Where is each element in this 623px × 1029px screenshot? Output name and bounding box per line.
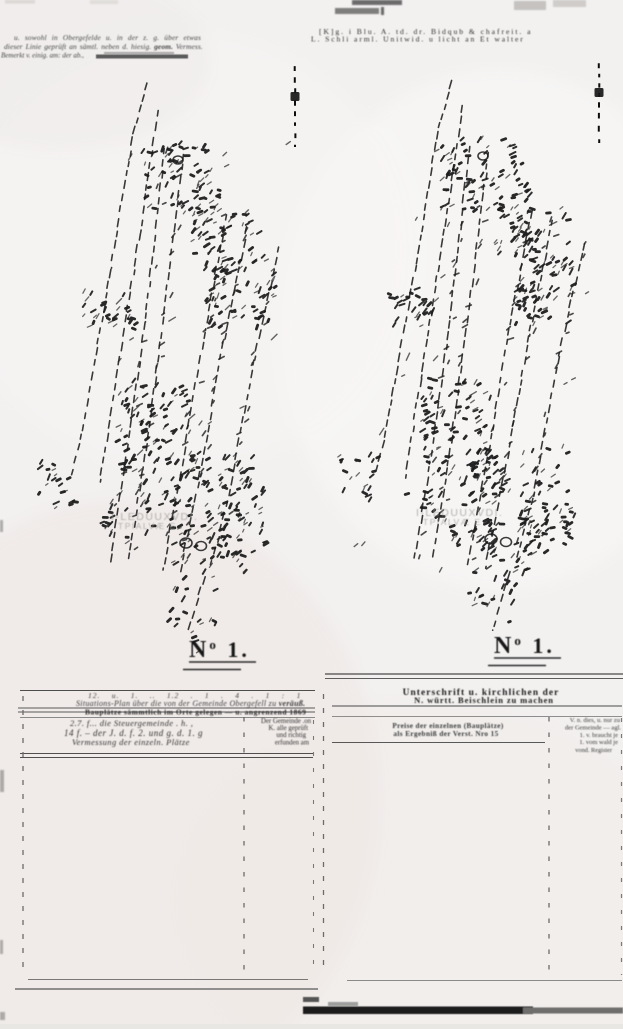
svg-text:der Gemeinde — agl.: der Gemeinde — agl. [565, 725, 621, 732]
svg-text:und richtig: und richtig [276, 732, 306, 739]
svg-text:L. Schli arml. Unitwid. u lich: L. Schli arml. Unitwid. u licht an Et wa… [311, 35, 525, 44]
svg-text:vond. Register: vond. Register [575, 747, 613, 754]
svg-text:u. sowohl in Obergefelde u. in: u. sowohl in Obergefelde u. in der z. g.… [14, 33, 201, 42]
svg-text:TPIALVÆ E: TPIALVÆ E [118, 521, 177, 531]
svg-text:V. n. dies, u. nur zu: V. n. dies, u. nur zu [570, 717, 621, 724]
svg-text:1. v. braucht je: 1. v. braucht je [580, 732, 618, 739]
svg-text:No 1.: No 1. [189, 637, 250, 663]
svg-text:Preise der einzelnen (Bauplätz: Preise der einzelnen (Bauplätze) [392, 722, 504, 730]
svg-text:Bauplätze sämmtlich im Orte ge: Bauplätze sämmtlich im Orte gelegen — u.… [85, 708, 306, 717]
svg-text:No 1.: No 1. [494, 633, 555, 659]
svg-text:K. alle geprüft: K. alle geprüft [269, 725, 309, 732]
svg-text:2.7. f... die Steuergemeinde .: 2.7. f... die Steuergemeinde . h. , [70, 718, 193, 728]
svg-text:dieser Linie geprüft an sämtl.: dieser Linie geprüft an sämtl. neben d. … [4, 42, 203, 51]
svg-text:als Ergebniß der Verst. Nro 15: als Ergebniß der Verst. Nro 15 [393, 730, 498, 738]
svg-text:Der Gemeinde .on: Der Gemeinde .on [261, 718, 312, 725]
svg-text:Bemerkt v. einig. am: der ab.,: Bemerkt v. einig. am: der ab., [1, 52, 84, 60]
svg-text:N. württ. Beischlein zu machen: N. württ. Beischlein zu machen [414, 695, 554, 705]
svg-text:1. vom wald je: 1. vom wald je [579, 739, 618, 746]
svg-text:Vermessung der einzeln. Plätze: Vermessung der einzeln. Plätze [72, 737, 190, 747]
svg-text:erfunden am: erfunden am [275, 740, 310, 747]
svg-text:TPIALVÆ E: TPIALVÆ E [423, 517, 482, 527]
